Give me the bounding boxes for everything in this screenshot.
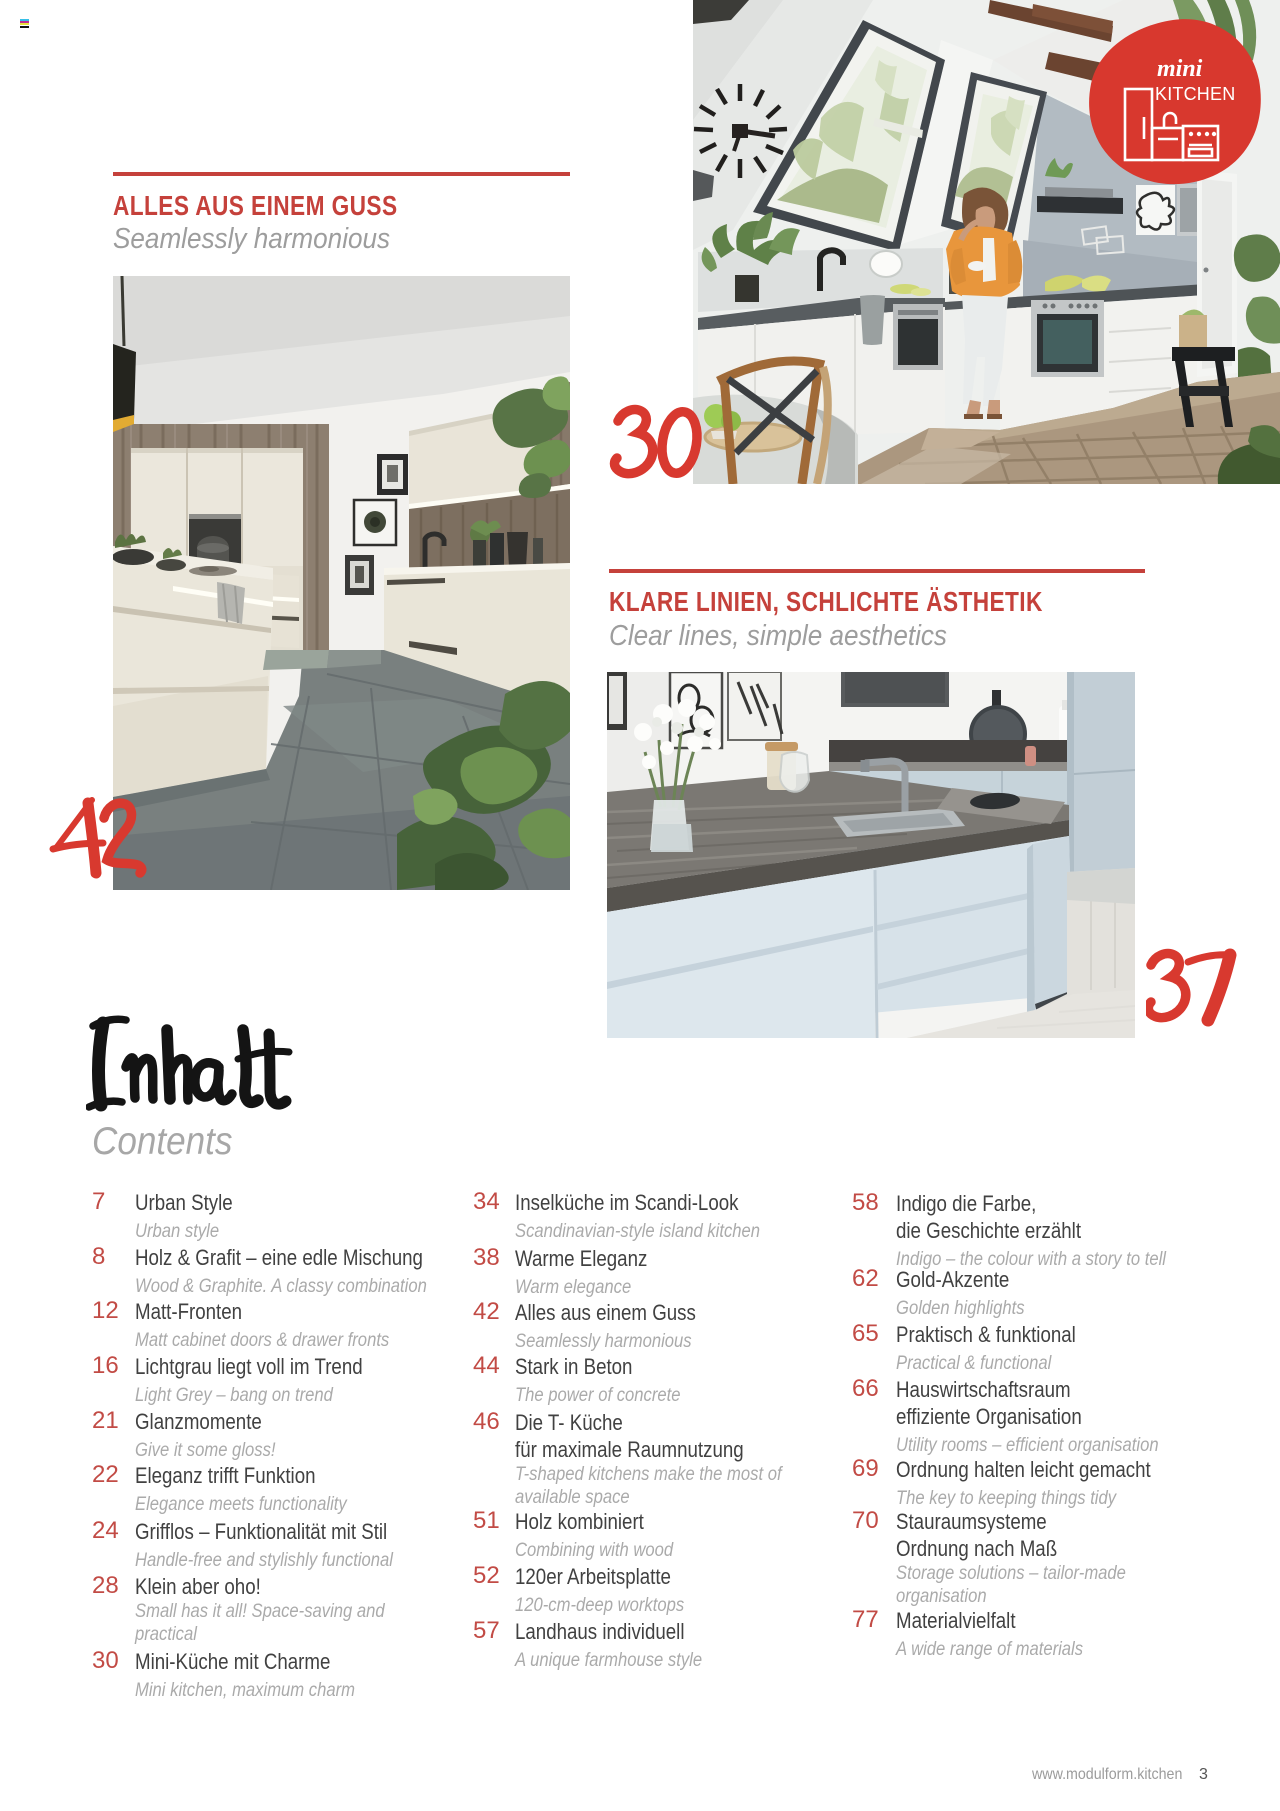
- svg-text:mini: mini: [1157, 56, 1203, 82]
- svg-text:KITCHEN: KITCHEN: [1155, 84, 1235, 104]
